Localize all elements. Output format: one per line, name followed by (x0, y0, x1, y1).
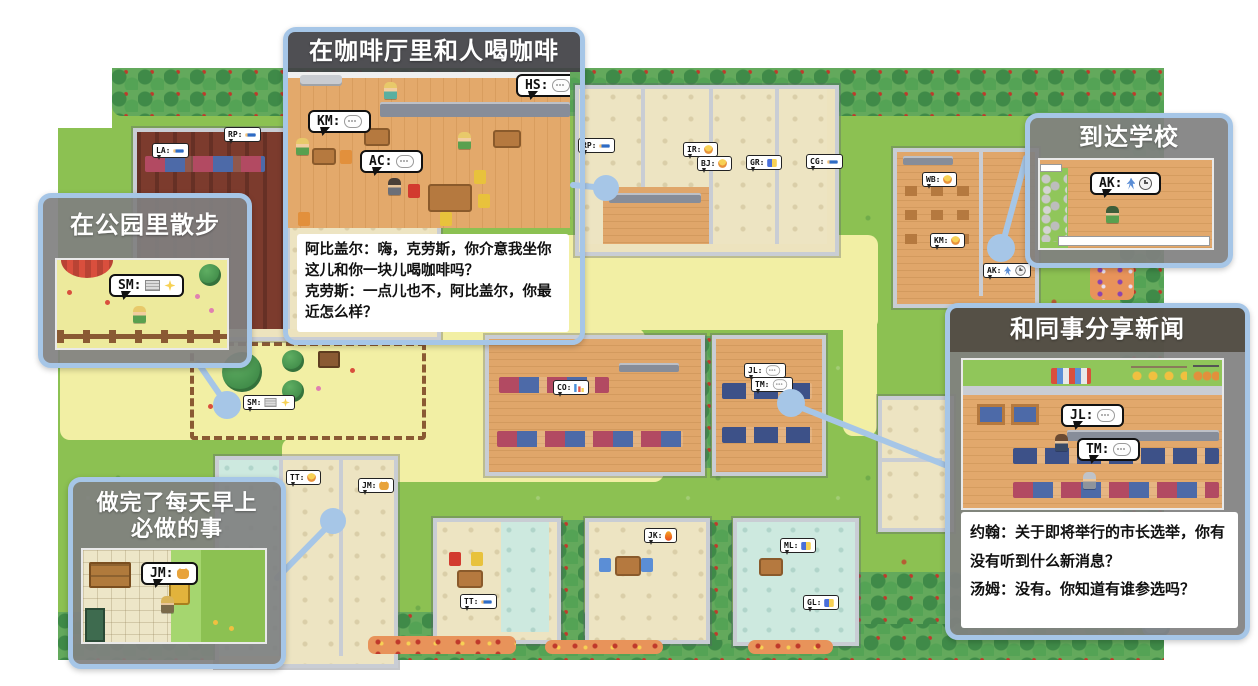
character-tom (1083, 472, 1096, 489)
cafe-counter (609, 193, 701, 203)
flower-stand (1051, 368, 1091, 384)
park-title: 在公园里散步 (43, 212, 247, 240)
agent-sm-label: SM: (118, 278, 141, 293)
wall (979, 152, 983, 296)
speech-bubble-km: KM: (308, 110, 371, 133)
school-desks (905, 210, 975, 220)
store-a-shelf (497, 431, 683, 447)
wall (775, 89, 779, 244)
agent-hs-label: HS: (525, 78, 548, 93)
flower (350, 368, 355, 373)
wall (339, 460, 343, 656)
school-desks (905, 234, 975, 244)
speech-bubble-jm: JM: (141, 562, 198, 585)
park-tree (199, 264, 221, 286)
path-east (843, 296, 877, 436)
yellow-chair (440, 212, 452, 226)
market-shelf (145, 156, 265, 172)
flower (195, 294, 200, 299)
flower (208, 404, 213, 409)
speech-bubble-hs: HS: (516, 74, 570, 97)
hanging-goods (1193, 365, 1219, 382)
flowerbed (545, 640, 663, 654)
ui-strip (1040, 164, 1062, 172)
dialogue-line: 约翰：关于即将举行的市长选举，你有没有听到什么新消息？ (970, 518, 1229, 575)
morning-title: 做完了每天早上必做的事 (93, 490, 261, 542)
yellow-chair (478, 194, 490, 208)
park-tree-small2 (282, 380, 304, 402)
speech-bubble-sm: SM: (109, 274, 184, 297)
character-sm (133, 306, 146, 323)
orange-chair (298, 212, 310, 226)
chat-icon (1113, 443, 1131, 456)
character-ak (1106, 206, 1119, 223)
sparkle-icon (164, 280, 175, 291)
agent-jm-label: JM: (150, 566, 173, 581)
callout-park: 在公园里散步 SM: (38, 193, 252, 368)
table (615, 556, 641, 576)
table (457, 570, 483, 588)
smallville-figure: LA:RP:RP:IR:BJ:GR:CG:WB:KM:AK:SM:CO:JL:T… (0, 0, 1258, 686)
chat-icon (344, 115, 362, 128)
yellow-chair (474, 170, 486, 184)
speech-bubble-ak: AK: (1090, 172, 1161, 195)
cat-icon (177, 569, 189, 579)
flower (105, 300, 110, 305)
agent-tm-label: TM: (1086, 442, 1109, 457)
park-shed (318, 351, 340, 368)
clock-icon (1139, 177, 1152, 190)
building-school (893, 148, 1039, 308)
picture-frame (977, 404, 1005, 425)
character-klaus (458, 132, 471, 149)
store-b-shelf (722, 383, 812, 399)
character-barista (384, 82, 397, 99)
chat-icon (396, 155, 414, 168)
dialogue-line: 克劳斯：一点儿也不，阿比盖尔，你最近怎么样？ (305, 281, 561, 323)
callout-news: 和同事分享新闻 JL: TM: 约翰：关于即将举行的市长 (945, 303, 1250, 640)
blue-chair (599, 558, 611, 572)
agent-ak-label: AK: (1099, 176, 1122, 191)
news-dialogue-box: 约翰：关于即将举行的市长选举，你有没有听到什么新消息？ 汤姆：没有。你知道有谁参… (961, 512, 1238, 628)
store-b-shelf (722, 427, 812, 443)
chat-icon (552, 79, 570, 92)
callout-school: 到达学校 AK: (1025, 113, 1233, 268)
flower (229, 626, 234, 631)
building-townhouse-row (575, 85, 839, 256)
counter (380, 102, 570, 117)
blue-chair (641, 558, 653, 572)
character-abigail (388, 178, 401, 195)
flower (209, 308, 214, 313)
red-chair (449, 552, 461, 566)
orange-chair (340, 150, 352, 164)
map-corner-notch (58, 68, 112, 128)
flower (213, 620, 218, 625)
news-title-bar: 和同事分享新闻 (950, 308, 1245, 352)
flowerbed (748, 640, 833, 654)
dialogue-line: 阿比盖尔：嗨，克劳斯，你介意我坐你这儿和你一块儿喝咖啡吗？ (305, 239, 561, 281)
agent-ac-label: AC: (369, 154, 392, 169)
park-fence-posts (57, 330, 227, 343)
store-shelf-row (1013, 482, 1219, 498)
dialogue-line: 汤姆：没有。你知道有谁参选吗？ (970, 575, 1229, 604)
building-right-houses (878, 396, 954, 532)
cafe-table (428, 184, 472, 212)
hanging-lights (1131, 366, 1187, 380)
school-title: 到达学校 (1030, 124, 1228, 152)
morning-screenshot: JM: (81, 548, 267, 644)
building-store-b (712, 335, 826, 476)
speech-bubble-jl: JL: (1061, 404, 1124, 427)
tent (61, 260, 113, 278)
park-screenshot: SM: (55, 258, 229, 350)
cafe-table (312, 148, 336, 165)
room (501, 522, 549, 632)
speech-bubble-ac: AC: (360, 150, 423, 173)
table (759, 558, 783, 576)
wall (882, 458, 942, 462)
red-chair (408, 184, 420, 198)
cafe-title-bar: 在咖啡厅里和人喝咖啡 (288, 32, 580, 72)
callout-morning: 做完了每天早上必做的事 JM: (68, 477, 286, 669)
callout-cafe: 在咖啡厅里和人喝咖啡 KM: AC: (283, 27, 585, 345)
news-screenshot: JL: TM: (961, 358, 1224, 510)
picture-frame (1011, 404, 1039, 425)
building-house-1 (433, 518, 561, 644)
sofa (300, 75, 342, 86)
cabinet (85, 608, 105, 642)
agent-jl-label: JL: (1070, 408, 1093, 423)
store-a-counter (619, 363, 679, 372)
walk-icon (1126, 178, 1135, 190)
character-left (296, 138, 309, 155)
cafe-table (493, 130, 521, 148)
school-desks (905, 186, 975, 196)
agent-km-label: KM: (317, 114, 340, 129)
yellow-chair (471, 552, 483, 566)
chat-icon (1097, 409, 1115, 422)
flower (67, 290, 72, 295)
cafe-screenshot: KM: AC: HS: (288, 72, 570, 228)
school-screenshot: AK: (1038, 158, 1214, 250)
news-title: 和同事分享新闻 (950, 308, 1245, 344)
store-wall (963, 386, 1222, 395)
school-board (903, 156, 953, 165)
rock-pile (1041, 174, 1067, 242)
cafe-title: 在咖啡厅里和人喝咖啡 (288, 32, 580, 66)
building-house-3 (733, 518, 859, 646)
flowerbed-purple (1090, 264, 1134, 300)
park-tree-small1 (282, 350, 304, 372)
store-a-shelf (499, 377, 609, 393)
character-john (1055, 434, 1068, 451)
book-icon (145, 280, 160, 291)
ui-bar (1058, 236, 1210, 246)
dresser (89, 562, 131, 588)
wall (709, 89, 713, 244)
building-house-2 (585, 518, 710, 644)
character-jm (161, 596, 174, 613)
cafe-dialogue-box: 阿比盖尔：嗨，克劳斯，你介意我坐你这儿和你一块儿喝咖啡吗？ 克劳斯：一点儿也不，… (297, 234, 569, 332)
flowerbed (368, 636, 516, 654)
building-store-a (485, 335, 705, 476)
flower (316, 386, 321, 391)
speech-bubble-tm: TM: (1077, 438, 1140, 461)
